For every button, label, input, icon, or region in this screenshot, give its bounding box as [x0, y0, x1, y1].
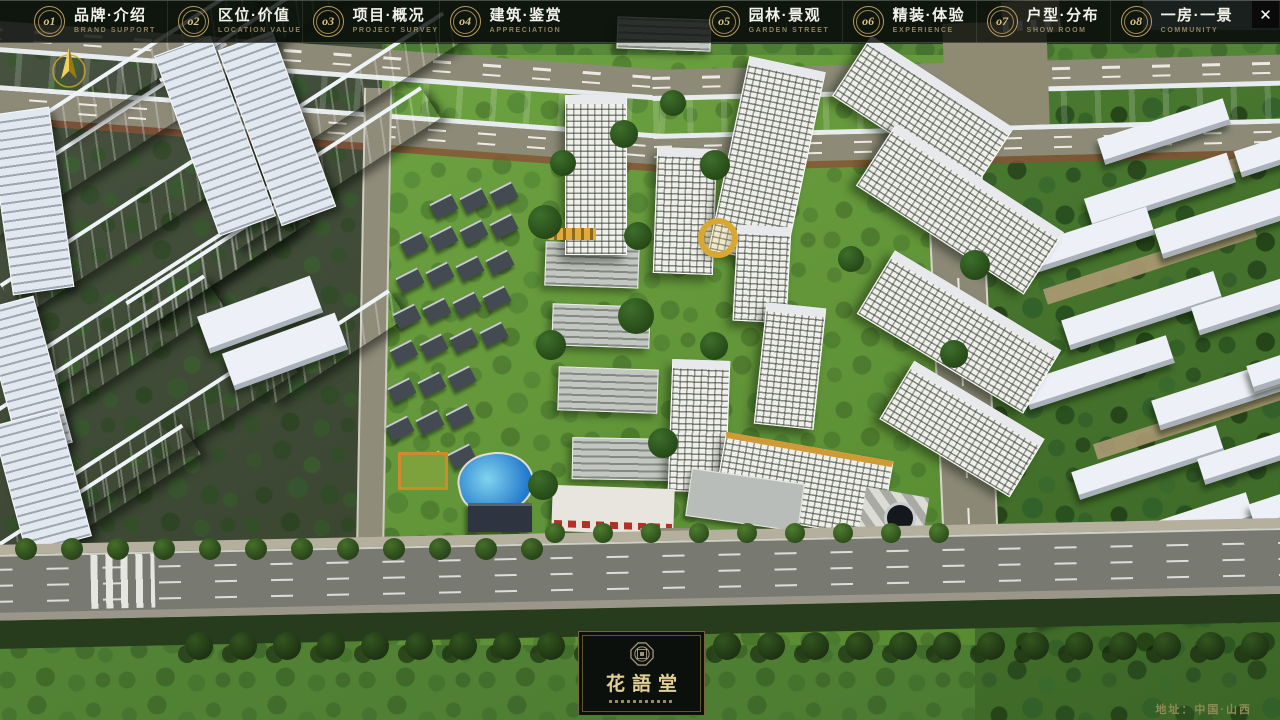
tree-cluster	[838, 246, 864, 272]
boulevard-tree	[1021, 632, 1049, 660]
street-tree	[641, 523, 661, 543]
tree-cluster	[940, 340, 968, 368]
nav-item-floorplan[interactable]: o7 户型·分布SHOW ROOM	[976, 1, 1110, 42]
tree-cluster	[528, 470, 558, 500]
number-badge-icon: o1	[34, 6, 65, 37]
street-tree	[61, 538, 83, 560]
street-tree	[337, 538, 359, 560]
boulevard-tree	[801, 632, 829, 660]
boulevard-tree	[845, 632, 873, 660]
boulevard-tree	[405, 632, 433, 660]
boulevard-tree	[1197, 632, 1225, 660]
street-tree	[833, 523, 853, 543]
nav-label-zh: 精装·体验	[893, 8, 966, 25]
nav-label-en: LOCATION VALUE	[218, 27, 302, 35]
boulevard-tree	[1241, 632, 1269, 660]
nav-label-zh: 项目·概况	[353, 8, 439, 25]
seal-icon	[629, 641, 655, 667]
nav-item-brand[interactable]: o1 品牌·介绍BRAND SUPPORT	[34, 1, 167, 42]
project-logo-panel: 花語堂	[578, 631, 705, 716]
close-icon[interactable]: ✕	[1252, 1, 1279, 28]
chinese-gate	[468, 503, 532, 532]
nav-label-zh: 园林·景观	[749, 8, 830, 25]
nav-label-zh: 户型·分布	[1027, 8, 1100, 25]
tree-cluster	[610, 120, 638, 148]
nav-label-en: GARDEN STREET	[749, 27, 830, 35]
nav-label-en: BRAND SUPPORT	[74, 27, 156, 35]
nav-item-garden[interactable]: o5 园林·景观GARDEN STREET	[709, 1, 842, 42]
street-tree	[429, 538, 451, 560]
logo-subtitle-dots	[609, 700, 675, 703]
boulevard-tree	[537, 632, 565, 660]
nav-label-en: COMMUNITY	[1161, 27, 1234, 35]
number-badge-icon: o2	[178, 6, 209, 37]
midrise-slab	[557, 366, 658, 413]
nav-item-project[interactable]: o3 项目·概况PROJECT SURVEY	[302, 1, 439, 42]
nav-label-en: APPRECIATION	[490, 27, 563, 35]
tree-cluster	[528, 205, 562, 239]
boulevard-tree	[185, 632, 213, 660]
street-tree	[245, 538, 267, 560]
nav-label-zh: 品牌·介绍	[74, 8, 156, 25]
tree-cluster	[536, 330, 566, 360]
highrise-tower	[754, 302, 826, 430]
tree-cluster	[550, 150, 576, 176]
boulevard-tree	[1109, 632, 1137, 660]
nav-label-en: EXPERIENCE	[893, 27, 966, 35]
tree-cluster	[618, 298, 654, 334]
nav-item-interior[interactable]: o6 精装·体验EXPERIENCE	[842, 1, 976, 42]
street-tree	[881, 523, 901, 543]
street-tree	[521, 538, 543, 560]
number-badge-icon: o3	[313, 6, 344, 37]
boulevard-tree	[493, 632, 521, 660]
compass-north-icon[interactable]	[44, 42, 94, 94]
tree-cluster	[624, 222, 652, 250]
number-badge-icon: o8	[1121, 6, 1152, 37]
boulevard-tree	[1065, 632, 1093, 660]
boulevard-tree	[757, 632, 785, 660]
street-tree	[929, 523, 949, 543]
boulevard-tree	[317, 632, 345, 660]
tree-cluster	[700, 332, 728, 360]
logo-frame: 花語堂	[582, 635, 701, 712]
street-tree	[475, 538, 497, 560]
street-tree	[785, 523, 805, 543]
tree-cluster	[648, 428, 678, 458]
project-address: 地址：中国·山西	[1155, 701, 1252, 717]
street-tree	[107, 538, 129, 560]
boulevard-tree	[713, 632, 741, 660]
street-tree	[153, 538, 175, 560]
boulevard-tree	[361, 632, 389, 660]
number-badge-icon: o7	[987, 6, 1018, 37]
boulevard-tree	[933, 632, 961, 660]
tree-cluster	[660, 90, 686, 116]
nav-label-zh: 建筑·鉴赏	[490, 8, 563, 25]
nav-item-views[interactable]: o8 一房·一景COMMUNITY	[1110, 1, 1244, 42]
number-badge-icon: o5	[709, 6, 740, 37]
street-tree	[689, 523, 709, 543]
street-tree	[15, 538, 37, 560]
street-tree	[291, 538, 313, 560]
nav-item-architecture[interactable]: o4 建筑·鉴赏APPRECIATION	[439, 1, 573, 42]
street-tree	[383, 538, 405, 560]
tree-cluster	[700, 150, 730, 180]
street-tree	[593, 523, 613, 543]
orange-frame-building	[398, 452, 448, 490]
nav-item-location[interactable]: o2 区位·价值LOCATION VALUE	[167, 1, 302, 42]
nav-label-en: PROJECT SURVEY	[353, 27, 439, 35]
tree-cluster	[960, 250, 990, 280]
boulevard-tree	[977, 632, 1005, 660]
nav-label-zh: 区位·价值	[218, 8, 302, 25]
boulevard-tree	[889, 632, 917, 660]
logo-title: 花語堂	[606, 669, 684, 696]
nav-label-en: SHOW ROOM	[1027, 27, 1100, 35]
number-badge-icon: o4	[450, 6, 481, 37]
masterplan-render-viewport[interactable]: ✕ o1 品牌·介绍BRAND SUPPORT o2 区位·价值LOCATION…	[0, 0, 1280, 720]
crosswalk	[90, 554, 155, 609]
boulevard-tree	[1153, 632, 1181, 660]
boulevard-tree	[273, 632, 301, 660]
boulevard-tree	[229, 632, 257, 660]
street-tree	[545, 523, 565, 543]
street-tree	[199, 538, 221, 560]
street-tree	[737, 523, 757, 543]
logo-gap	[573, 1, 709, 42]
nav-label-zh: 一房·一景	[1161, 8, 1234, 25]
bottom-nav-bar: o1 品牌·介绍BRAND SUPPORT o2 区位·价值LOCATION V…	[0, 0, 1280, 43]
gold-ring-landmark	[698, 218, 738, 258]
boulevard-tree	[449, 632, 477, 660]
number-badge-icon: o6	[853, 6, 884, 37]
